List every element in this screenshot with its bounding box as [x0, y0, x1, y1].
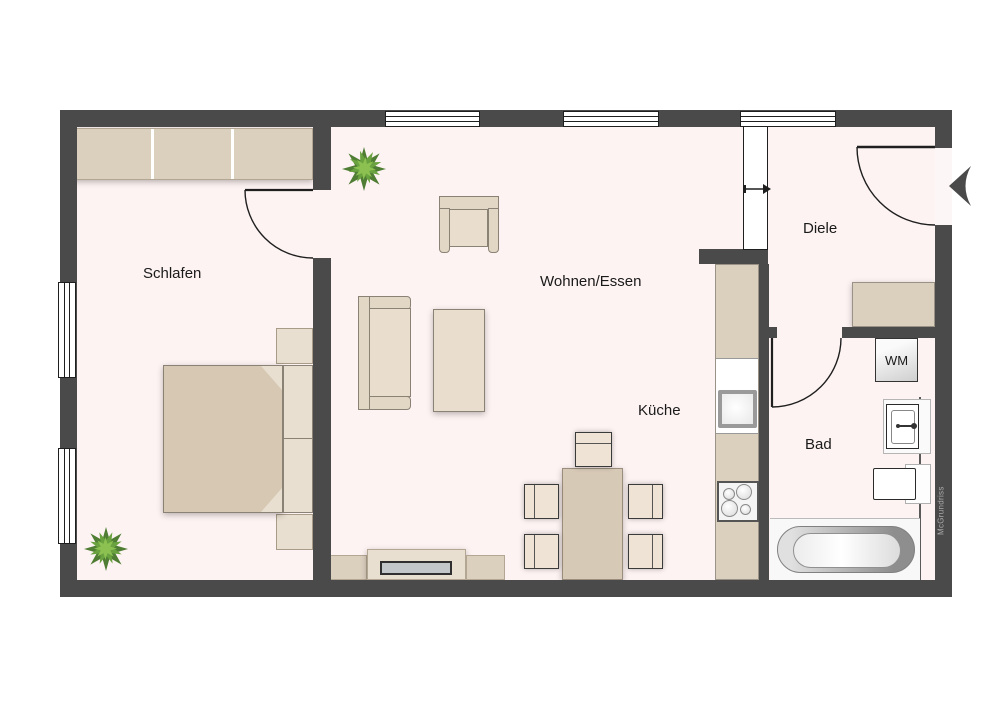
- bedroom-door-swing: [245, 190, 313, 258]
- room-label-kueche: Küche: [638, 403, 681, 419]
- doors-overlay: [0, 0, 1000, 706]
- room-label-wohnen-essen: Wohnen/Essen: [540, 274, 641, 290]
- room-label-diele: Diele: [803, 221, 837, 237]
- floorplan-canvas: WM McGrundriss: [0, 0, 1000, 706]
- passage-arrowhead-icon: [763, 184, 771, 194]
- entrance-arrow-icon: [949, 166, 971, 206]
- room-label-schlafen: Schlafen: [143, 266, 201, 282]
- bathroom-door-swing: [772, 338, 841, 407]
- entrance-door-swing: [857, 147, 935, 225]
- room-label-bad: Bad: [805, 437, 832, 453]
